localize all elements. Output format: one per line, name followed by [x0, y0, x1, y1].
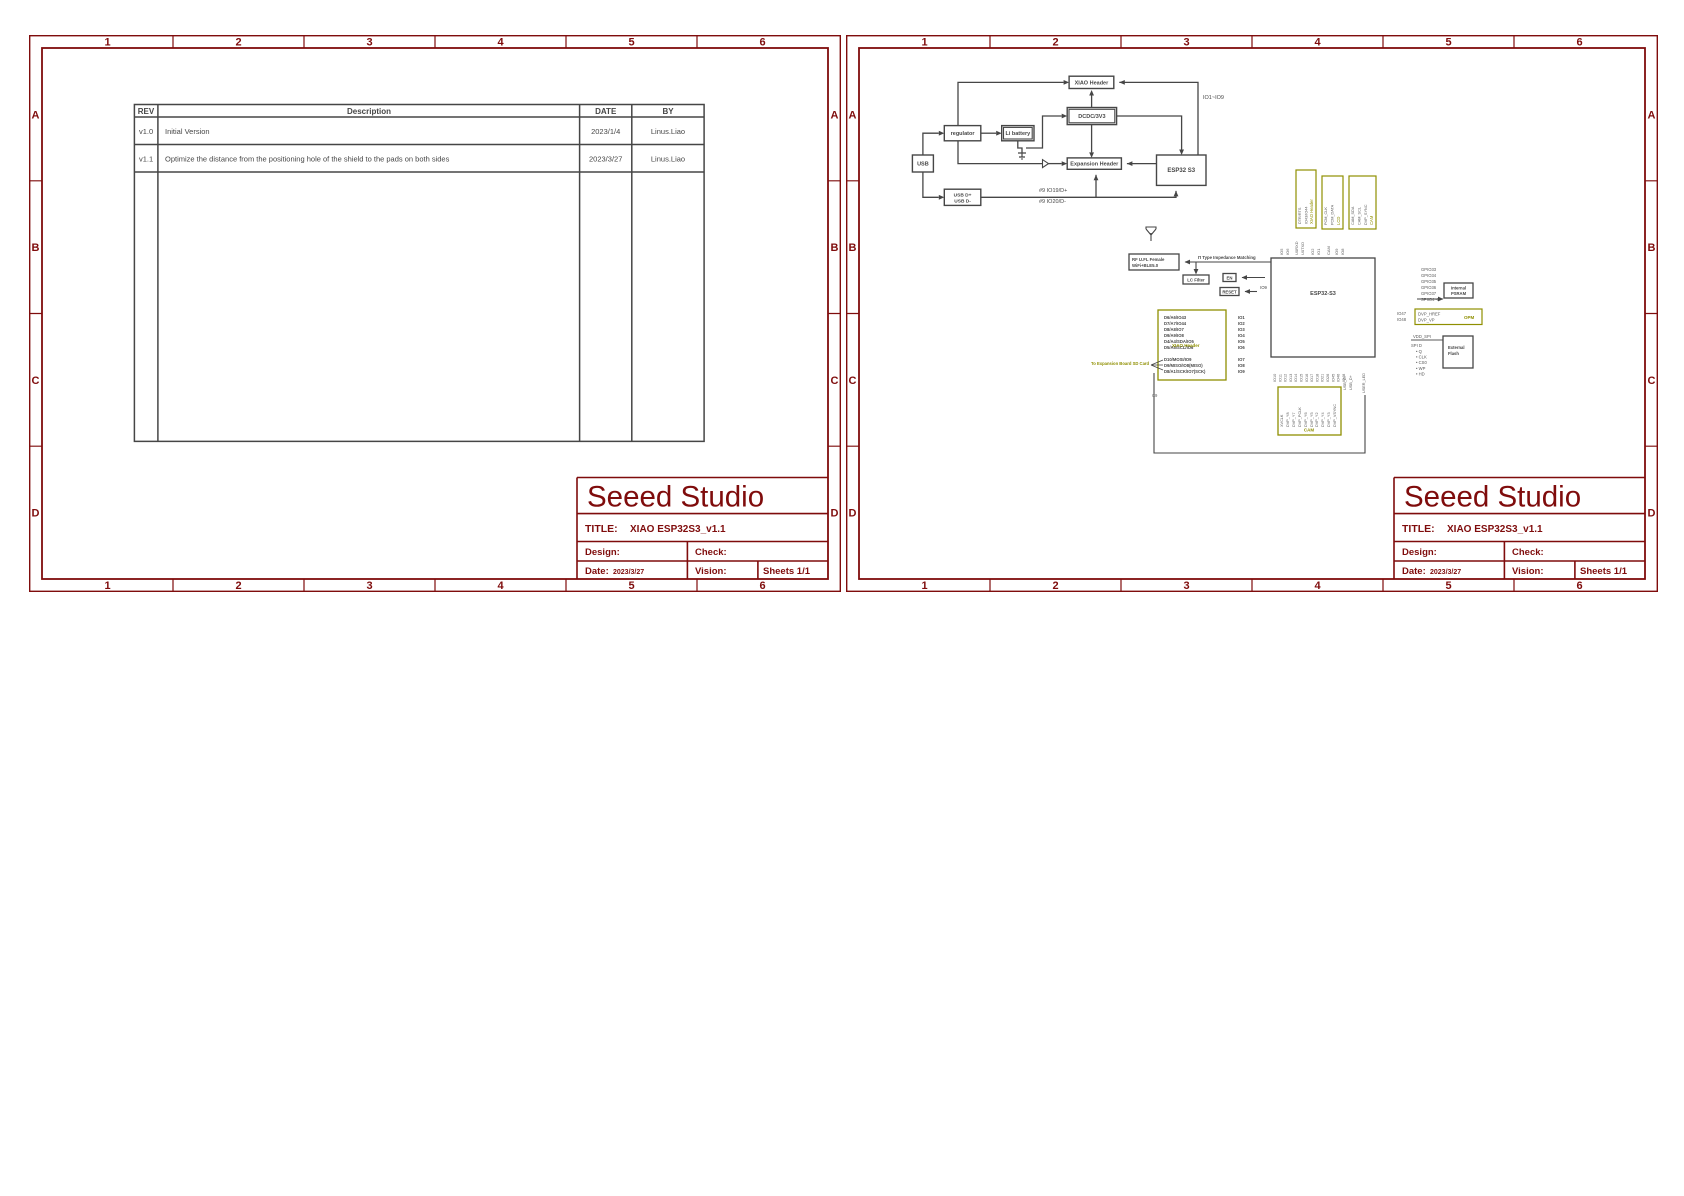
svg-text:1: 1 — [921, 37, 927, 49]
svg-text:IO8: IO8 — [1238, 363, 1245, 368]
svg-text:• CS0: • CS0 — [1416, 360, 1427, 365]
svg-text:USB_D-: USB_D- — [1343, 375, 1347, 390]
svg-text:B: B — [849, 242, 857, 254]
svg-text:GPIO36: GPIO36 — [1421, 285, 1437, 290]
svg-text:1: 1 — [104, 37, 110, 49]
svg-text:C9: C9 — [1152, 393, 1158, 398]
svg-text:DVP_SYNC: DVP_SYNC — [1364, 204, 1368, 225]
svg-text:IO9: IO9 — [1334, 248, 1339, 255]
svg-text:IO48: IO48 — [1397, 317, 1407, 322]
svg-text:Vision:: Vision: — [695, 566, 727, 577]
svg-text:IO26: IO26 — [1326, 374, 1330, 382]
svg-text:IO13: IO13 — [1289, 374, 1293, 382]
svg-text:IO1~IO9: IO1~IO9 — [1203, 95, 1224, 101]
svg-text:D: D — [849, 508, 857, 520]
svg-text:IO14: IO14 — [1294, 374, 1298, 382]
svg-text:6: 6 — [1576, 37, 1582, 49]
svg-text:IO21: IO21 — [1321, 374, 1325, 382]
svg-text:XIAO Header: XIAO Header — [1172, 343, 1200, 348]
svg-text:LC Filter: LC Filter — [1187, 278, 1205, 283]
svg-text:Flash: Flash — [1448, 351, 1459, 356]
svg-text:DTR/RTS: DTR/RTS — [1298, 207, 1302, 224]
svg-text:A: A — [831, 109, 839, 121]
svg-text:D10/MOSI/IO9: D10/MOSI/IO9 — [1164, 357, 1192, 362]
svg-text:IO10: IO10 — [1273, 374, 1277, 382]
svg-text:PCM_DATA: PCM_DATA — [1331, 204, 1335, 225]
svg-text:4: 4 — [1314, 580, 1321, 592]
svg-text:IO4: IO4 — [1238, 333, 1245, 338]
svg-text:6: 6 — [1576, 580, 1582, 592]
svg-text:WiFi+BLE5.0: WiFi+BLE5.0 — [1132, 263, 1159, 268]
svg-text:IO3: IO3 — [1238, 327, 1245, 332]
svg-text:To Expansion Board SD Card: To Expansion Board SD Card — [1091, 361, 1150, 366]
svg-text:1: 1 — [921, 580, 927, 592]
svg-text:DVP_Y3: DVP_Y3 — [1327, 412, 1331, 427]
svg-text:XIAO Header: XIAO Header — [1075, 80, 1109, 86]
svg-text:LCD: LCD — [1336, 217, 1341, 225]
svg-text:Date:: Date: — [1402, 566, 1426, 577]
svg-text:IO16: IO16 — [1305, 374, 1309, 382]
svg-text:Initial Version: Initial Version — [165, 127, 210, 136]
svg-text:5: 5 — [1445, 580, 1451, 592]
svg-text:Linus.Liao: Linus.Liao — [651, 155, 685, 164]
svg-text:A: A — [32, 109, 40, 121]
svg-text:A: A — [849, 109, 857, 121]
svg-text:Design:: Design: — [1402, 547, 1437, 558]
svg-text:U0RXD: U0RXD — [1294, 241, 1299, 255]
svg-text:GPIO33: GPIO33 — [1421, 267, 1437, 272]
svg-text:IO8: IO8 — [1340, 248, 1345, 255]
svg-text:#9 IO20/D-: #9 IO20/D- — [1039, 199, 1066, 205]
svg-text:IO15: IO15 — [1300, 374, 1304, 382]
svg-text:CAM_SDA: CAM_SDA — [1351, 206, 1355, 225]
svg-text:Expansion Header: Expansion Header — [1070, 162, 1119, 168]
svg-text:TITLE:: TITLE: — [585, 523, 618, 535]
svg-text:Linus.Liao: Linus.Liao — [651, 127, 685, 136]
svg-text:Vision:: Vision: — [1512, 566, 1544, 577]
svg-text:IO2: IO2 — [1310, 248, 1315, 255]
svg-text:Optimize the distance from the: Optimize the distance from the positioni… — [165, 155, 450, 164]
svg-text:XVCLK: XVCLK — [1280, 414, 1284, 427]
svg-text:IO6: IO6 — [1238, 345, 1245, 350]
svg-text:5: 5 — [628, 37, 634, 49]
svg-text:2: 2 — [1052, 37, 1058, 49]
svg-text:EN: EN — [1227, 276, 1233, 281]
svg-text:2023/3/27: 2023/3/27 — [589, 155, 622, 164]
svg-text:D9/A9/IO8: D9/A9/IO8 — [1164, 333, 1184, 338]
svg-text:4: 4 — [497, 580, 504, 592]
svg-text:#9 IO19/D+: #9 IO19/D+ — [1039, 188, 1067, 194]
svg-text:ESP32-S3: ESP32-S3 — [1310, 291, 1336, 297]
svg-text:IO6: IO6 — [1285, 248, 1290, 255]
svg-text:IO17: IO17 — [1310, 374, 1314, 382]
svg-text:PSRAM: PSRAM — [1451, 291, 1467, 296]
svg-text:Design:: Design: — [585, 547, 620, 558]
svg-text:IO46: IO46 — [1337, 374, 1341, 382]
svg-text:2: 2 — [235, 580, 241, 592]
svg-text:USB: USB — [917, 162, 929, 168]
svg-text:DVP_Y4: DVP_Y4 — [1321, 412, 1325, 427]
svg-text:Internal: Internal — [1451, 286, 1466, 291]
svg-text:IO12: IO12 — [1284, 374, 1288, 382]
svg-text:6: 6 — [759, 580, 765, 592]
svg-text:regulator: regulator — [951, 131, 976, 137]
svg-text:2023/3/27: 2023/3/27 — [1430, 569, 1461, 576]
svg-text:2023/1/4: 2023/1/4 — [591, 127, 620, 136]
svg-text:DVP_Y5: DVP_Y5 — [1310, 412, 1314, 427]
svg-text:3: 3 — [1183, 580, 1189, 592]
svg-text:IO11: IO11 — [1278, 374, 1282, 382]
svg-text:• Q: • Q — [1416, 349, 1423, 354]
svg-text:XIAO ESP32S3_v1.1: XIAO ESP32S3_v1.1 — [630, 524, 726, 535]
svg-text:2: 2 — [1052, 580, 1058, 592]
svg-text:PCM_CLK: PCM_CLK — [1324, 207, 1328, 225]
svg-text:USER_LED: USER_LED — [1362, 373, 1366, 393]
svg-text:C: C — [1648, 375, 1656, 387]
svg-text:Seeed Studio: Seeed Studio — [587, 481, 764, 514]
svg-text:XIAO Header: XIAO Header — [1309, 198, 1314, 224]
svg-text:DVP_Y2: DVP_Y2 — [1315, 412, 1319, 427]
svg-text:Check:: Check: — [1512, 547, 1544, 558]
svg-text:3: 3 — [1183, 37, 1189, 49]
svg-text:П Type Impedance Matching: П Type Impedance Matching — [1198, 255, 1256, 260]
svg-text:Sheets 1/1: Sheets 1/1 — [763, 566, 811, 577]
svg-text:D: D — [32, 508, 40, 520]
svg-text:D: D — [831, 508, 839, 520]
svg-text:DVP_VP: DVP_VP — [1418, 318, 1435, 323]
svg-text:USB D-: USB D- — [954, 198, 971, 204]
svg-text:Seeed Studio: Seeed Studio — [1404, 481, 1581, 514]
svg-text:IO1: IO1 — [1238, 315, 1245, 320]
svg-text:IO47: IO47 — [1397, 311, 1407, 316]
svg-text:Li battery: Li battery — [1005, 131, 1031, 137]
svg-text:DVP_Y8: DVP_Y8 — [1286, 412, 1290, 427]
svg-text:DVP_HREF: DVP_HREF — [1418, 312, 1441, 317]
svg-text:XIAO ESP32S3_v1.1: XIAO ESP32S3_v1.1 — [1447, 524, 1543, 535]
svg-text:• WP: • WP — [1416, 366, 1426, 371]
svg-text:D6/A6/IO43: D6/A6/IO43 — [1164, 315, 1187, 320]
svg-text:5: 5 — [1445, 37, 1451, 49]
svg-text:2023/3/27: 2023/3/27 — [613, 569, 644, 576]
svg-text:REV: REV — [138, 107, 155, 116]
svg-text:IO45: IO45 — [1331, 374, 1335, 382]
svg-text:CAM: CAM — [1369, 215, 1374, 225]
svg-text:Date:: Date: — [585, 566, 609, 577]
svg-text:5: 5 — [628, 580, 634, 592]
svg-text:ESP32 S3: ESP32 S3 — [1167, 168, 1195, 174]
svg-text:D8/A1/SCK/IO7(SCK): D8/A1/SCK/IO7(SCK) — [1164, 369, 1206, 374]
svg-text:1: 1 — [104, 580, 110, 592]
svg-text:IO5: IO5 — [1279, 248, 1284, 255]
svg-text:D: D — [1648, 508, 1656, 520]
svg-text:B: B — [831, 242, 839, 254]
svg-text:D7/A7/IO44: D7/A7/IO44 — [1164, 321, 1187, 326]
svg-text:B: B — [1648, 242, 1656, 254]
svg-text:DVP_Y6: DVP_Y6 — [1304, 412, 1308, 427]
svg-text:IO9: IO9 — [1238, 369, 1245, 374]
svg-text:C: C — [831, 375, 839, 387]
svg-text:USB D+: USB D+ — [954, 192, 972, 198]
svg-text:B: B — [32, 242, 40, 254]
svg-text:4: 4 — [1314, 37, 1321, 49]
svg-text:CAM: CAM — [1304, 428, 1314, 433]
svg-text:DCDC/3V3: DCDC/3V3 — [1078, 114, 1105, 120]
svg-text:CAM: CAM — [1326, 246, 1331, 255]
svg-text:IO18: IO18 — [1315, 374, 1319, 382]
svg-text:BY: BY — [662, 107, 674, 116]
svg-text:Check:: Check: — [695, 547, 727, 558]
svg-text:DVP_VSYNC: DVP_VSYNC — [1333, 404, 1337, 427]
svg-text:• HD: • HD — [1416, 371, 1425, 376]
svg-text:IO1: IO1 — [1316, 248, 1321, 255]
svg-text:IO43/IO44: IO43/IO44 — [1305, 206, 1309, 224]
svg-text:D8/A8/IO7: D8/A8/IO7 — [1164, 327, 1184, 332]
svg-text:A: A — [1648, 109, 1656, 121]
svg-text:GPIO35: GPIO35 — [1421, 279, 1437, 284]
svg-text:SPI D: SPI D — [1411, 343, 1422, 348]
svg-text:4: 4 — [497, 37, 504, 49]
svg-text:GPIO37: GPIO37 — [1421, 291, 1437, 296]
svg-text:6: 6 — [759, 37, 765, 49]
svg-text:IO5: IO5 — [1238, 339, 1245, 344]
svg-text:IO2: IO2 — [1238, 321, 1245, 326]
svg-text:D9/MISO/IO8(MISO): D9/MISO/IO8(MISO) — [1164, 363, 1203, 368]
svg-text:DVP_PCLK: DVP_PCLK — [1298, 407, 1302, 427]
svg-text:GPIO34: GPIO34 — [1421, 273, 1437, 278]
svg-text:TITLE:: TITLE: — [1402, 523, 1435, 535]
svg-text:OPM: OPM — [1464, 315, 1475, 320]
svg-text:3: 3 — [366, 580, 372, 592]
svg-text:RESET: RESET — [1222, 290, 1237, 295]
svg-text:v1.1: v1.1 — [139, 155, 153, 164]
svg-text:IO7: IO7 — [1238, 357, 1245, 362]
svg-text:2: 2 — [235, 37, 241, 49]
svg-text:RF U.FL Female: RF U.FL Female — [1132, 257, 1165, 262]
svg-text:• CLK: • CLK — [1416, 355, 1427, 360]
svg-text:IO9: IO9 — [1260, 285, 1268, 290]
svg-text:U0TXD: U0TXD — [1300, 242, 1305, 255]
svg-text:Description: Description — [347, 107, 391, 116]
svg-text:C: C — [32, 375, 40, 387]
svg-text:CAM_SCL: CAM_SCL — [1358, 207, 1362, 225]
svg-text:DVP_Y7: DVP_Y7 — [1292, 412, 1296, 427]
svg-text:USB_D+: USB_D+ — [1349, 374, 1353, 390]
svg-text:v1.0: v1.0 — [139, 127, 153, 136]
svg-text:Sheets 1/1: Sheets 1/1 — [1580, 566, 1628, 577]
svg-text:3: 3 — [366, 37, 372, 49]
svg-text:VDD_SPI: VDD_SPI — [1413, 334, 1431, 339]
svg-text:DATE: DATE — [595, 107, 617, 116]
svg-text:External: External — [1448, 345, 1465, 350]
svg-text:C: C — [849, 375, 857, 387]
